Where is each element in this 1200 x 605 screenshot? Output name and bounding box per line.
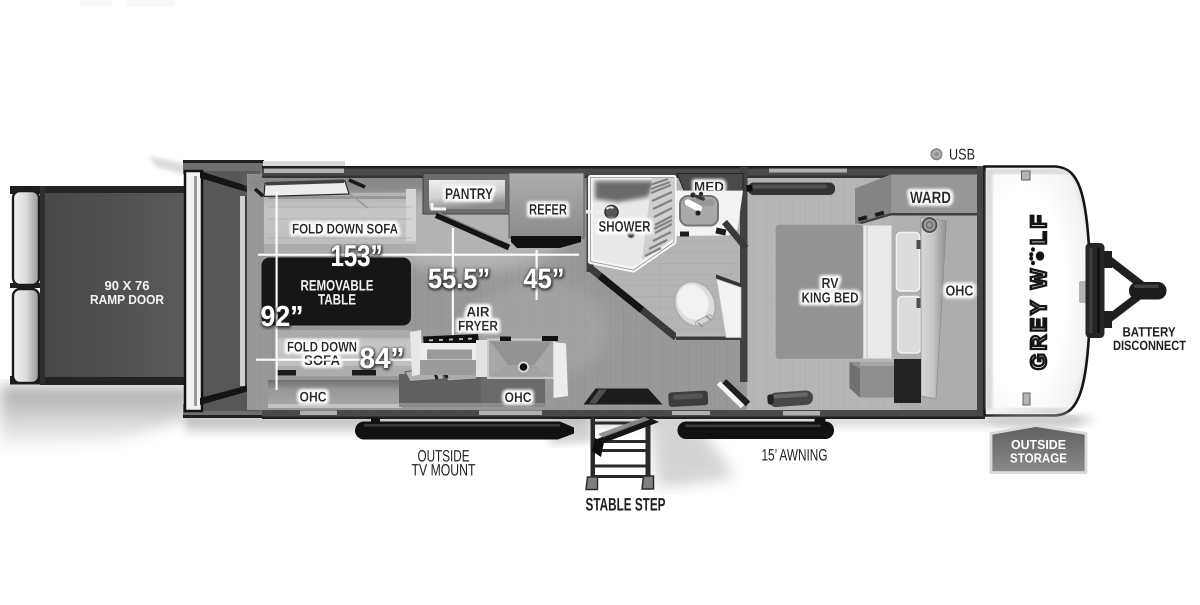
svg-text:153”: 153” bbox=[331, 240, 383, 273]
svg-text:RAMP DOOR: RAMP DOOR bbox=[90, 292, 165, 307]
svg-text:SHOWER: SHOWER bbox=[599, 219, 651, 236]
svg-text:84”: 84” bbox=[360, 343, 405, 375]
svg-text:OHC: OHC bbox=[300, 389, 327, 405]
svg-text:STABLE STEP: STABLE STEP bbox=[586, 495, 666, 515]
svg-text:OHC: OHC bbox=[505, 389, 532, 405]
svg-text:WARD: WARD bbox=[910, 189, 951, 207]
svg-text:TABLE: TABLE bbox=[318, 292, 356, 309]
svg-text:45”: 45” bbox=[524, 263, 565, 294]
svg-text:TV MOUNT: TV MOUNT bbox=[412, 462, 476, 480]
svg-text:KING BED: KING BED bbox=[802, 291, 859, 307]
svg-text:90 X 76: 90 X 76 bbox=[105, 278, 150, 293]
svg-text:92”: 92” bbox=[261, 301, 304, 333]
svg-text:USB: USB bbox=[949, 147, 975, 164]
svg-text:FOLD DOWN SOFA: FOLD DOWN SOFA bbox=[292, 221, 398, 237]
svg-text:OHC: OHC bbox=[946, 284, 974, 300]
svg-text:LF: LF bbox=[1026, 212, 1051, 245]
svg-text:STORAGE: STORAGE bbox=[1010, 451, 1067, 466]
svg-text:REFER: REFER bbox=[529, 202, 567, 219]
svg-text:55.5”: 55.5” bbox=[428, 263, 490, 294]
svg-text:DISCONNECT: DISCONNECT bbox=[1113, 338, 1187, 353]
svg-text:15’ AWNING: 15’ AWNING bbox=[762, 447, 828, 465]
svg-text:FRYER: FRYER bbox=[458, 318, 498, 334]
svg-text:GREY W: GREY W bbox=[1026, 266, 1051, 370]
svg-text:PANTRY: PANTRY bbox=[445, 186, 494, 203]
